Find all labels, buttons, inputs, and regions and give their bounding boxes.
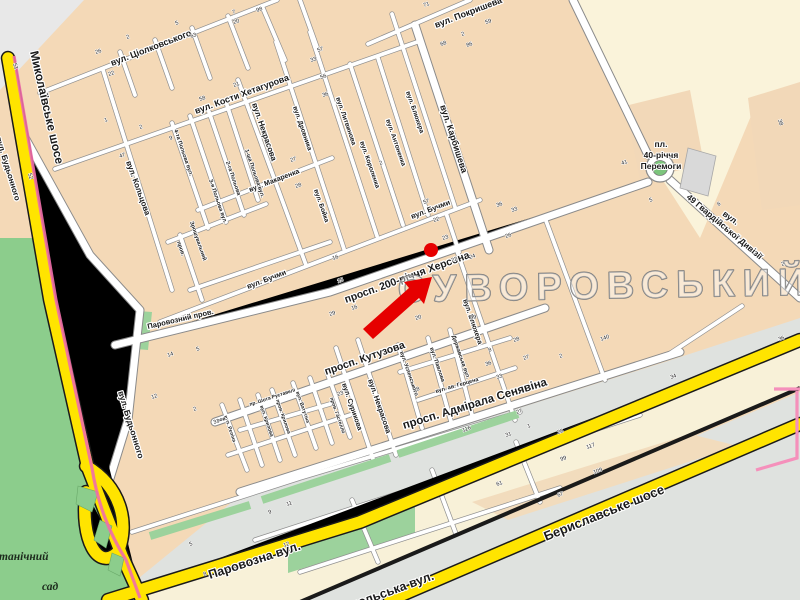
label-botanichnyi: Ботанічний xyxy=(0,550,49,563)
location-marker-dot-icon xyxy=(424,243,438,257)
map-svg: Миколаївське шосевул. Будьонноговул. Буд… xyxy=(0,0,800,600)
label-pl-40: 40-річчя xyxy=(644,150,679,160)
label-pl-peremogy: Перемоги xyxy=(641,161,682,171)
label-sad: сад xyxy=(42,581,59,593)
city-map-canvas[interactable]: Миколаївське шосевул. Будьонноговул. Буд… xyxy=(0,0,800,600)
label-pl: пл. xyxy=(655,139,668,149)
